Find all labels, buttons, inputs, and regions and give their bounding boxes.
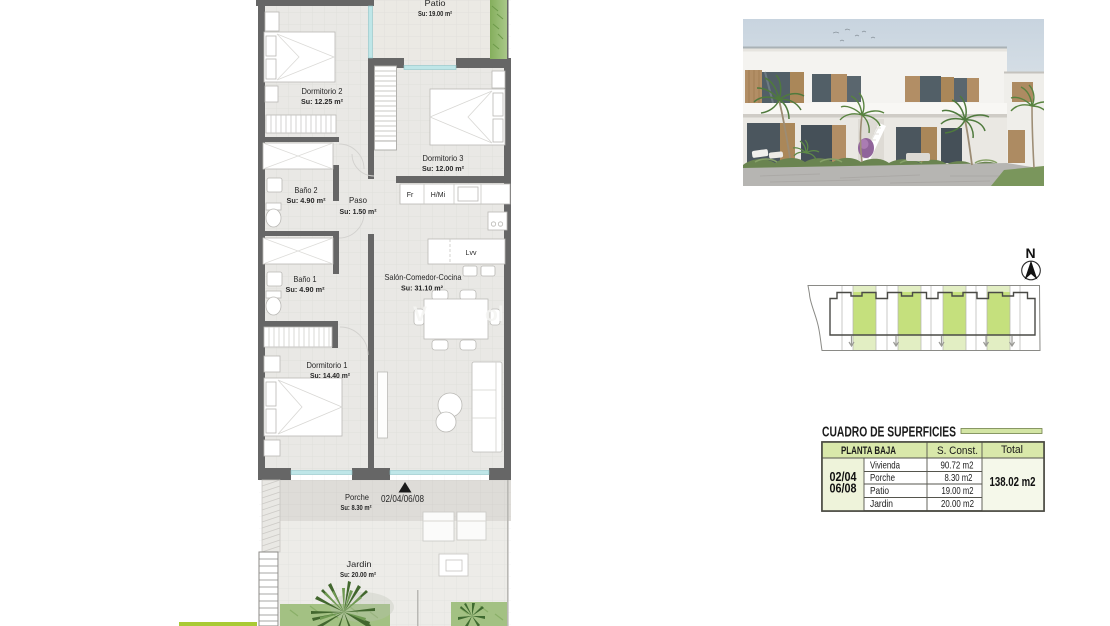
svg-text:Su: 8.30 m²: Su: 8.30 m² <box>341 503 372 512</box>
svg-text:Su: 12.25 m²: Su: 12.25 m² <box>301 97 343 106</box>
svg-text:Su: 19.00 m²: Su: 19.00 m² <box>418 9 452 18</box>
svg-text:Su: 20.00 m²: Su: 20.00 m² <box>340 570 376 579</box>
svg-text:Patio: Patio <box>870 485 889 497</box>
svg-text:138.02 m2: 138.02 m2 <box>990 475 1036 489</box>
svg-text:Su: 31.10 m²: Su: 31.10 m² <box>401 284 443 293</box>
svg-text:Su: 1.50 m²: Su: 1.50 m² <box>340 207 377 216</box>
svg-text:Porche: Porche <box>870 472 895 484</box>
svg-text:V: V <box>413 303 427 326</box>
svg-text:Dormitorio 3: Dormitorio 3 <box>423 153 464 163</box>
svg-text:Vivienda: Vivienda <box>870 460 900 472</box>
svg-text:N: N <box>1025 245 1035 261</box>
svg-text:Su: 4.90 m²: Su: 4.90 m² <box>286 285 325 294</box>
svg-text:CUADRO DE SUPERFICIES: CUADRO DE SUPERFICIES <box>822 425 956 441</box>
svg-text:Jardin: Jardin <box>347 559 372 569</box>
svg-text:Paso: Paso <box>349 195 367 205</box>
svg-text:Salón-Comedor-Cocina: Salón-Comedor-Cocina <box>385 272 462 282</box>
svg-text:Jardin: Jardin <box>870 498 893 510</box>
svg-text:20.00 m2: 20.00 m2 <box>941 498 974 510</box>
svg-text:Lvv: Lvv <box>466 250 477 257</box>
svg-text:ol: ol <box>485 303 504 326</box>
svg-text:90.72 m2: 90.72 m2 <box>941 460 974 472</box>
svg-text:Dormitorio 2: Dormitorio 2 <box>302 86 343 96</box>
svg-text:Su: 12.00 m²: Su: 12.00 m² <box>422 164 464 173</box>
svg-text:Fr: Fr <box>407 192 414 199</box>
svg-text:8.30 m2: 8.30 m2 <box>945 472 973 484</box>
svg-text:02/04/06/08: 02/04/06/08 <box>381 494 424 505</box>
svg-text:Baño 2: Baño 2 <box>295 185 318 195</box>
svg-text:Dormitorio 1: Dormitorio 1 <box>307 360 348 370</box>
svg-text:Baño 1: Baño 1 <box>294 274 317 284</box>
svg-text:Su: 4.90 m²: Su: 4.90 m² <box>287 196 326 205</box>
svg-text:Patio: Patio <box>425 0 446 8</box>
svg-text:19.00 m2: 19.00 m2 <box>942 485 974 497</box>
svg-text:06/08: 06/08 <box>830 482 857 496</box>
svg-text:Total: Total <box>1001 444 1023 456</box>
svg-text:S. Const.: S. Const. <box>937 445 978 457</box>
svg-text:H/Mi: H/Mi <box>431 192 446 199</box>
svg-text:Porche: Porche <box>345 492 369 502</box>
svg-text:Su: 14.40 m²: Su: 14.40 m² <box>310 371 350 380</box>
svg-text:PLANTA BAJA: PLANTA BAJA <box>841 445 896 457</box>
